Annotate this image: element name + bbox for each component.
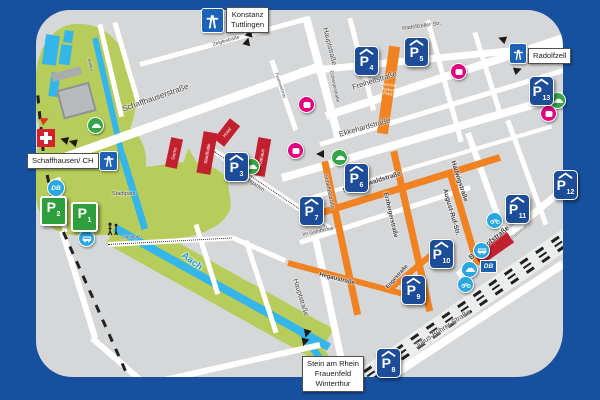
db-rail-icon[interactable]: DB: [47, 179, 65, 197]
parking-garage-p3[interactable]: P3: [224, 152, 249, 182]
map-area: Heinrich- Weber- Platz Gems Stadthalle H…: [36, 10, 563, 377]
hospital-icon: [37, 129, 55, 147]
sign-stein-am-rhein[interactable]: Stein am Rhein Frauenfeld Winterthur: [302, 356, 364, 392]
poi-glyph-icon: [291, 146, 301, 156]
bus-icon: [82, 234, 92, 244]
pool: [63, 30, 74, 43]
street-segment: [231, 235, 286, 263]
poi-icon[interactable]: [540, 105, 557, 122]
street-segment: [473, 32, 502, 114]
poi-icon[interactable]: [450, 63, 467, 80]
sign-radolfzell[interactable]: Radolfzell: [528, 48, 571, 64]
parking-map: Heinrich- Weber- Platz Gems Stadthalle H…: [0, 0, 600, 400]
bike-parking-icon[interactable]: [457, 276, 474, 293]
parking-garage-p5[interactable]: P5: [404, 37, 429, 67]
sign-line: Winterthur: [307, 379, 359, 389]
motorway-icon: [201, 8, 224, 33]
parking-garage-p4[interactable]: P4: [354, 46, 379, 76]
motorway-icon: [509, 43, 527, 64]
car-icon: [465, 265, 475, 275]
poi-icon[interactable]: [298, 96, 315, 113]
bike-parking-icon[interactable]: [486, 212, 503, 229]
direction-arrow: [316, 150, 324, 158]
parking-garage-p11[interactable]: P11: [505, 194, 530, 224]
parking-garage-p8[interactable]: P8: [376, 348, 401, 378]
street-label: Zelglestraße: [212, 34, 240, 47]
parking-garage-p12[interactable]: P12: [553, 170, 578, 200]
car-icon: [553, 96, 563, 106]
parking-garage-p7[interactable]: P7: [299, 196, 324, 226]
parking-lot-p1[interactable]: P1: [71, 202, 98, 232]
motorway-icon: [99, 151, 118, 171]
bus-stop-icon[interactable]: [473, 242, 490, 259]
parking-garage-p9[interactable]: P9: [401, 275, 426, 305]
car-icon: [91, 121, 101, 131]
bus-stop-icon[interactable]: [78, 230, 95, 247]
sign-line: Tuttlingen: [231, 20, 264, 30]
street-segment: [159, 342, 320, 377]
bus-icon: [477, 246, 487, 256]
sign-konstanz-tuttlingen[interactable]: Konstanz Tuttlingen: [226, 7, 269, 33]
db-logo-text: DB: [51, 185, 60, 192]
poi-glyph-icon: [302, 100, 312, 110]
sign-line: Stein am Rhein: [307, 359, 359, 369]
hwp-line: Platz: [383, 92, 393, 98]
car-icon: [335, 153, 345, 163]
street-label: Hauptstraße: [321, 27, 337, 66]
db-station-logo[interactable]: DB: [480, 260, 497, 273]
pedestrians-icon: [106, 222, 120, 236]
sign-line: Frauenfeld: [307, 369, 359, 379]
street-segment: [59, 230, 98, 339]
db-logo-text: DB: [484, 263, 493, 270]
building-hotel: Hotel: [214, 118, 240, 146]
bike-icon: [490, 216, 500, 226]
parking-garage-p10[interactable]: P10: [429, 239, 454, 269]
car-guidance-icon[interactable]: [87, 117, 104, 134]
parking-garage-p13[interactable]: P13: [529, 76, 554, 106]
place-label: Stadtpark: [112, 191, 136, 197]
sign-schaffhausen[interactable]: Schaffhausen/ CH: [27, 153, 99, 169]
parking-garage-p6[interactable]: P6: [344, 163, 369, 193]
poi-glyph-icon: [454, 67, 464, 77]
parking-lot-p2[interactable]: P2: [40, 196, 67, 226]
poi-icon[interactable]: [287, 142, 304, 159]
sign-line: Konstanz: [231, 10, 264, 20]
street-label: Radolfzeller Str.: [402, 21, 441, 32]
poi-glyph-icon: [544, 109, 554, 119]
bike-icon: [461, 280, 471, 290]
